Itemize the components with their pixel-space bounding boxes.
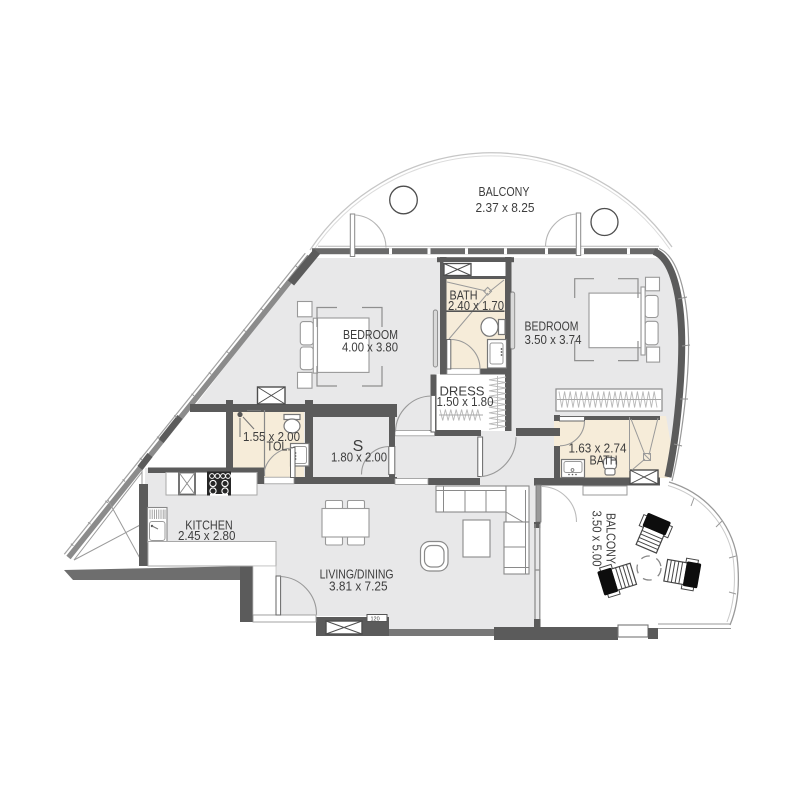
svg-text:BATH: BATH [590,453,618,467]
svg-text:4.00 x 3.80: 4.00 x 3.80 [342,341,398,355]
svg-text:BEDROOM: BEDROOM [525,320,579,334]
svg-text:TOL.: TOL. [267,440,291,454]
svg-text:3.50 x 5.00: 3.50 x 5.00 [590,511,604,567]
svg-text:2.45 x 2.80: 2.45 x 2.80 [178,529,236,543]
svg-text:BALCONY: BALCONY [479,185,531,199]
svg-text:1.80 x 2.00: 1.80 x 2.00 [331,451,387,465]
svg-text:120: 120 [371,617,380,623]
svg-text:1.50 x 1.80: 1.50 x 1.80 [437,395,494,409]
svg-text:2.40 x 1.70: 2.40 x 1.70 [448,299,504,313]
svg-text:2.37 x 8.25: 2.37 x 8.25 [476,201,535,215]
svg-text:3.50 x 3.74: 3.50 x 3.74 [525,333,582,347]
svg-text:BALCONY: BALCONY [604,513,618,565]
svg-text:3.81 x 7.25: 3.81 x 7.25 [329,579,388,593]
